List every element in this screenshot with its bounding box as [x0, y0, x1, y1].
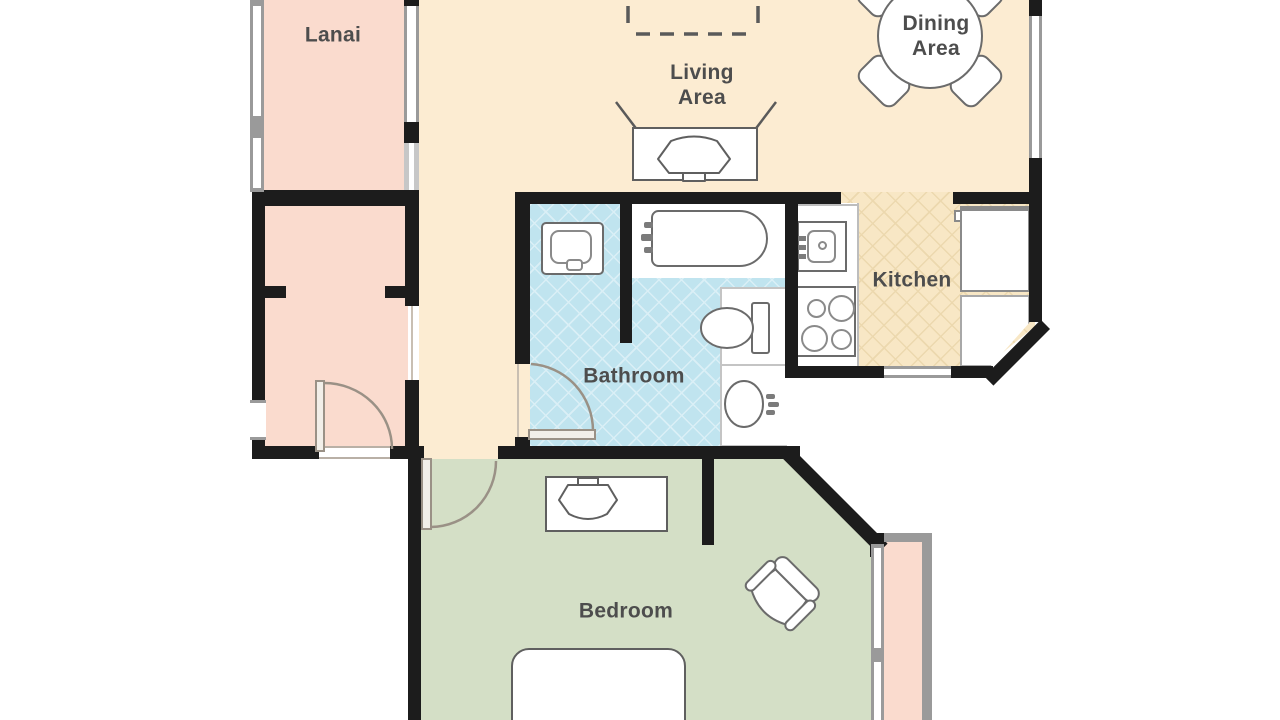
lanai-screen-glass [253, 138, 261, 188]
wall-stub [702, 453, 714, 545]
wall-segment [785, 366, 884, 378]
entry-door [313, 378, 397, 460]
wall-segment [1029, 158, 1042, 322]
tv-icon [656, 129, 732, 183]
burner-icon [828, 295, 855, 322]
room-hallway-floor [419, 200, 515, 459]
refrigerator-handle [954, 210, 962, 222]
wall-segment [620, 192, 632, 343]
threshold-line [517, 364, 519, 437]
window-entry [250, 400, 266, 440]
armchair [732, 550, 826, 644]
bedroom-slider-glass [874, 548, 881, 648]
label-line: Living [670, 60, 734, 85]
threshold-line [411, 306, 413, 380]
label-bedroom: Bedroom [579, 599, 673, 624]
label-bathroom: Bathroom [583, 364, 685, 389]
burner-icon [801, 325, 828, 352]
bathtub [651, 210, 768, 267]
wall-segment [953, 192, 1041, 204]
kitchen-faucet-icon [798, 245, 806, 250]
lanai2-screen-wall-right [922, 533, 932, 720]
label-line: Area [670, 85, 734, 110]
wall-segment [252, 190, 419, 206]
label-line: Dining [902, 11, 969, 36]
wall-segment [252, 446, 319, 459]
lanai-screen-glass [253, 6, 261, 116]
vanity-divider [722, 364, 787, 366]
wall-segment [951, 366, 993, 378]
label-dining-area: Dining Area [902, 11, 969, 61]
label-line: Area [902, 36, 969, 61]
toilet [697, 301, 773, 357]
window-glass [409, 143, 414, 190]
kitchen-sink-drain-icon [818, 241, 827, 250]
wall-segment [515, 192, 530, 364]
bathroom-sink [722, 377, 780, 431]
label-lanai: Lanai [305, 23, 361, 48]
floor-plan: Lanai Living Area Dining Area Kitchen Ba… [0, 0, 1280, 720]
wall-stub [385, 286, 419, 298]
window-lanai [404, 143, 419, 190]
stove [796, 286, 856, 357]
wall-segment [498, 446, 800, 459]
window-dining [1029, 16, 1042, 158]
bedroom-door [418, 455, 502, 537]
burner-icon [807, 299, 826, 318]
room-lanai2-floor [884, 541, 922, 720]
wall-segment [404, 120, 419, 145]
window-kitchen [884, 366, 951, 378]
bed [511, 648, 686, 720]
sliding-door-lanai [404, 6, 419, 122]
kitchen-faucet-icon [798, 236, 806, 241]
sofa-dashed-outline [624, 4, 762, 38]
bedroom-tv-icon [557, 477, 619, 529]
wall-stub [252, 286, 286, 298]
kitchen-faucet-icon [798, 254, 806, 259]
kitchen-counter-edge [797, 204, 857, 206]
label-kitchen: Kitchen [872, 268, 951, 293]
burner-icon [831, 329, 852, 350]
shower-drain-icon [566, 259, 583, 271]
bathtub-faucet-icon [640, 220, 656, 260]
bedroom-slider-glass [874, 662, 881, 720]
label-living-area: Living Area [670, 60, 734, 110]
wall-segment [785, 192, 798, 378]
shower [541, 222, 604, 275]
refrigerator [960, 206, 1030, 292]
wall-segment [405, 380, 419, 447]
